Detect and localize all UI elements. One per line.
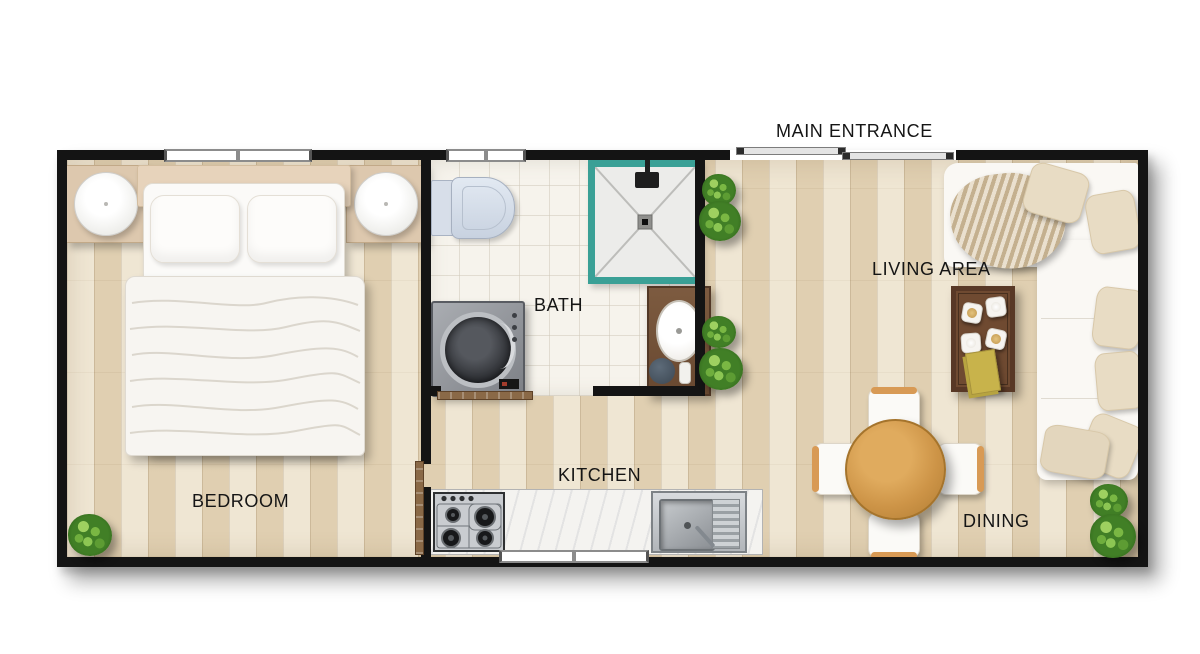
bath-rug bbox=[649, 358, 675, 384]
plant bbox=[702, 316, 736, 348]
washer-handle bbox=[485, 323, 515, 369]
cup bbox=[960, 301, 983, 324]
sink-drainboard bbox=[712, 499, 740, 549]
bed-pillow-left bbox=[150, 195, 240, 263]
washer-display bbox=[499, 379, 519, 389]
bath-sliding-door bbox=[437, 391, 533, 400]
gas-stove bbox=[433, 492, 505, 552]
plant bbox=[699, 348, 743, 390]
chair-back bbox=[871, 552, 917, 559]
toilet-brush bbox=[679, 362, 691, 384]
wall-bedroom-divider bbox=[421, 160, 431, 464]
bath-window bbox=[446, 149, 526, 162]
coffee-table bbox=[951, 286, 1015, 392]
chair-back bbox=[977, 446, 984, 492]
cup bbox=[985, 296, 1008, 319]
lamp-right bbox=[354, 172, 418, 236]
washer-knob bbox=[512, 325, 517, 330]
cup bbox=[984, 327, 1008, 351]
bed-pillow-right bbox=[247, 195, 337, 263]
living-area-label: LIVING AREA bbox=[872, 259, 991, 280]
bed-duvet bbox=[125, 276, 365, 456]
bedroom-label: BEDROOM bbox=[192, 491, 289, 512]
duvet-wrinkles-icon bbox=[126, 277, 364, 455]
chair-back bbox=[812, 446, 819, 492]
washer-knob bbox=[512, 313, 517, 318]
lamp-left bbox=[74, 172, 138, 236]
sofa-cushion bbox=[1091, 285, 1146, 350]
bath-label: BATH bbox=[534, 295, 583, 316]
washing-machine bbox=[431, 301, 525, 397]
wall-bath-bottom bbox=[593, 386, 705, 396]
sofa-cushion bbox=[1094, 350, 1145, 412]
bedroom-sliding-door bbox=[415, 461, 424, 555]
kitchen-sink bbox=[651, 491, 747, 553]
kitchen-label: KITCHEN bbox=[558, 465, 641, 486]
toilet bbox=[451, 177, 515, 239]
dining-label: DINING bbox=[963, 511, 1030, 532]
book bbox=[965, 349, 1001, 395]
entrance-sliding-panel bbox=[842, 152, 954, 160]
stove-icon bbox=[433, 492, 505, 552]
sink-basin bbox=[659, 499, 715, 551]
kitchen-window bbox=[499, 550, 649, 563]
plant bbox=[1090, 514, 1136, 558]
washer-knob bbox=[512, 337, 517, 342]
chair-back bbox=[871, 387, 917, 394]
plant bbox=[68, 514, 112, 556]
sofa-cushion bbox=[1083, 188, 1143, 256]
bedroom-window bbox=[164, 149, 312, 162]
shower-head bbox=[635, 172, 659, 188]
plant bbox=[699, 201, 741, 241]
main-entrance-label: MAIN ENTRANCE bbox=[776, 121, 933, 142]
dining-table bbox=[845, 419, 946, 520]
entrance-sliding-panel bbox=[736, 147, 846, 155]
plant bbox=[1090, 484, 1128, 518]
floor-plan-canvas: MAIN ENTRANCE LIVING AREA BATH KITCHEN B… bbox=[0, 0, 1200, 654]
